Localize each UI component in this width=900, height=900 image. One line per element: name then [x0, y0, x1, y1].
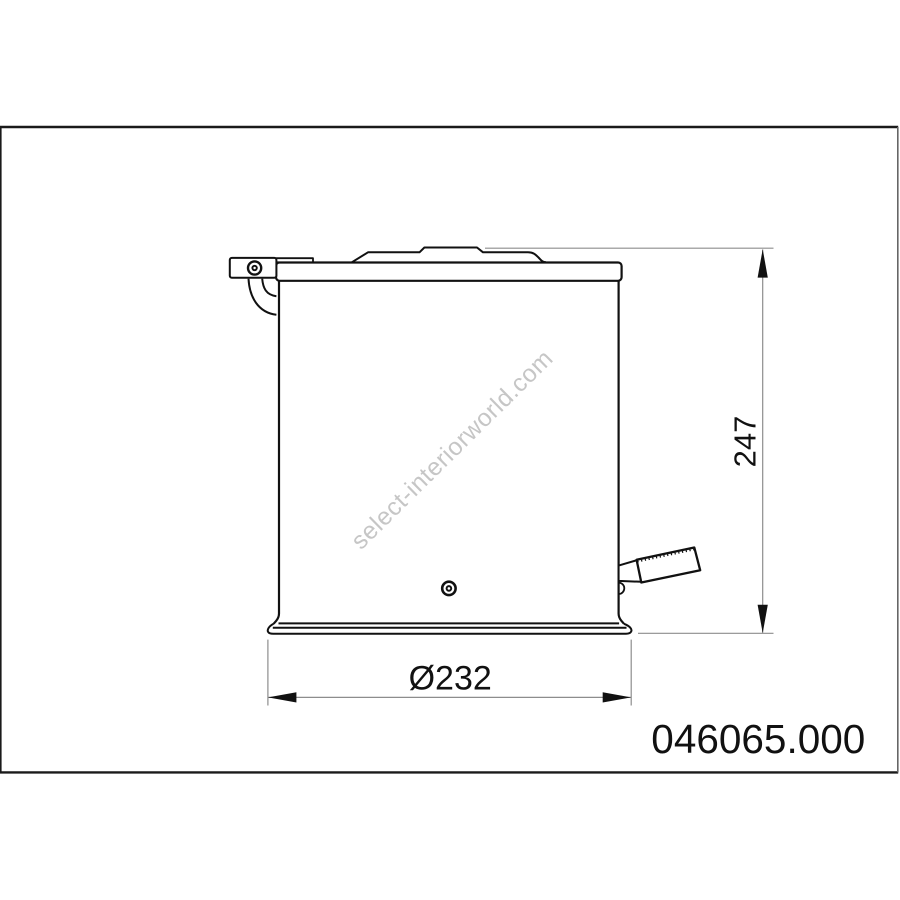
- svg-text:046065.000: 046065.000: [651, 716, 865, 762]
- svg-text:Ø232: Ø232: [409, 660, 492, 698]
- svg-text:247: 247: [728, 416, 763, 468]
